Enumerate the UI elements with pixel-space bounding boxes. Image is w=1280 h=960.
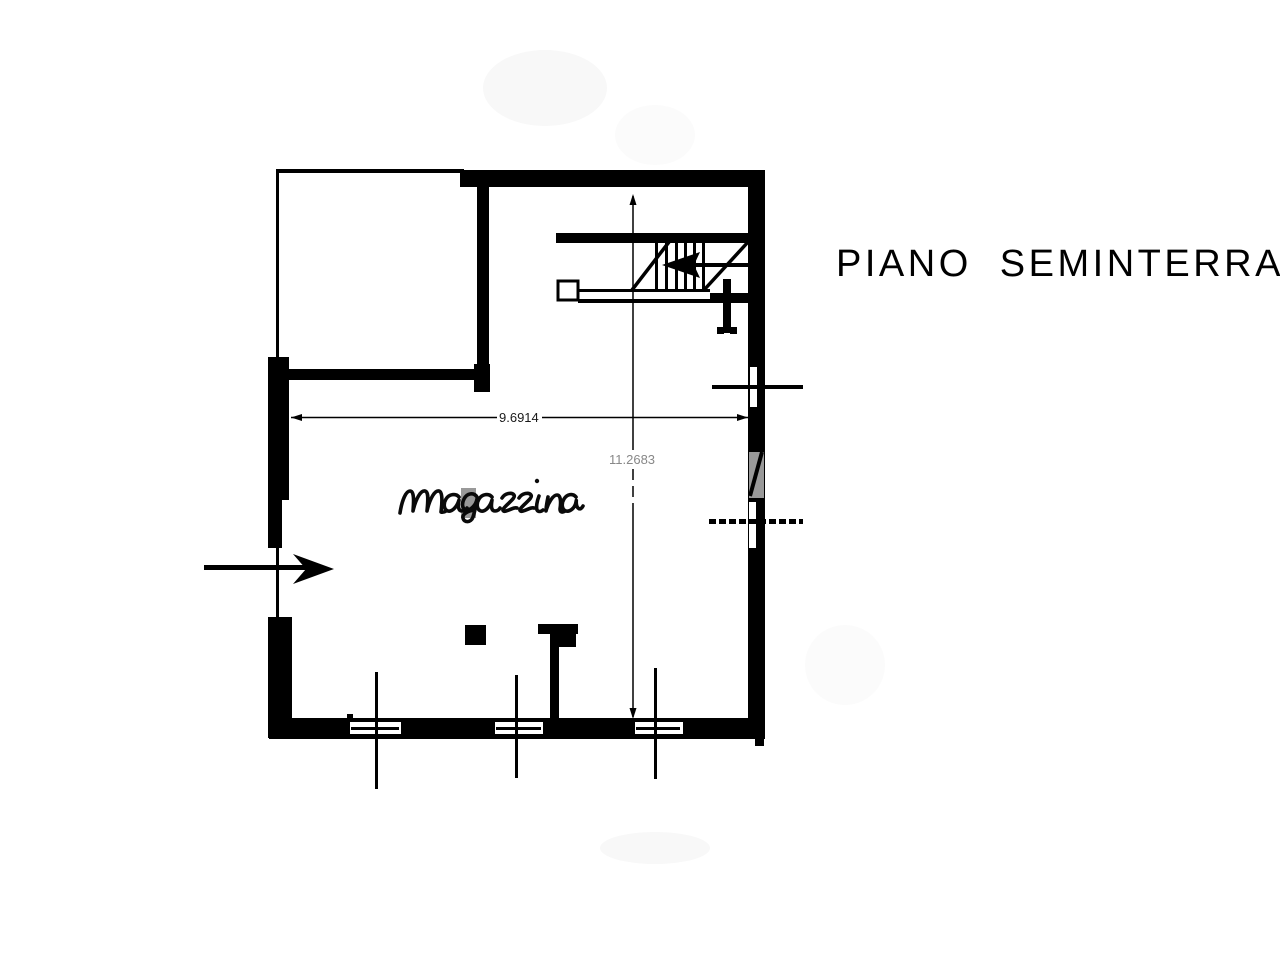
svg-text:9.6914: 9.6914 [499, 410, 539, 425]
svg-text:PIANO SEMINTERRATO: PIANO SEMINTERRATO [836, 243, 1280, 285]
svg-text:11.2683: 11.2683 [609, 452, 655, 467]
